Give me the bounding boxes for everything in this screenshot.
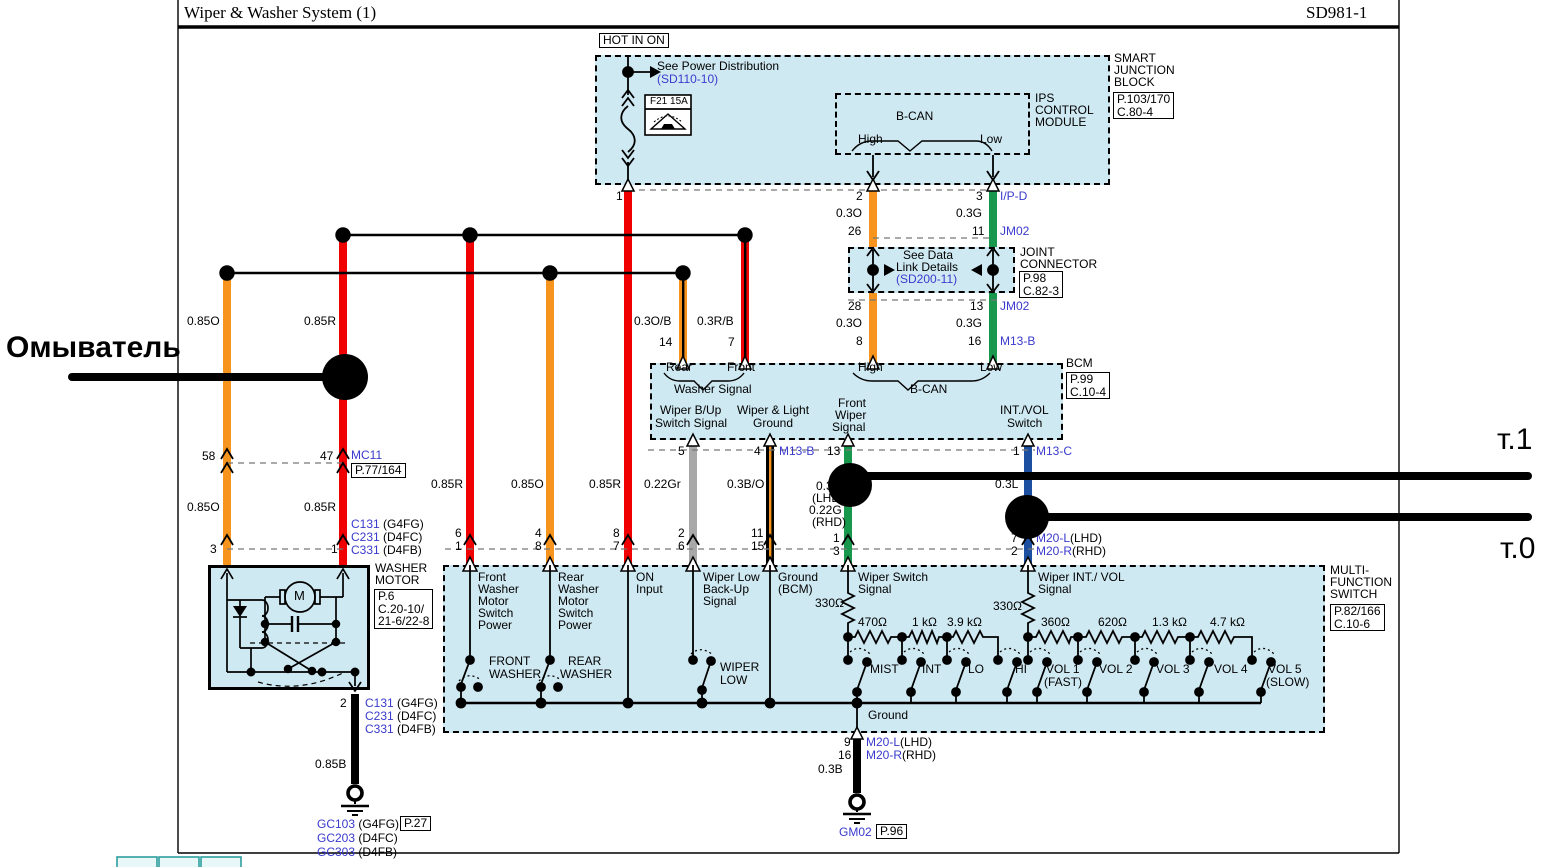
switch-pos: HI [1015,663,1027,676]
mfs-col: Signal [1038,583,1071,596]
wire-label: 0.3G [956,317,982,330]
resistor-value: 620Ω [1098,616,1127,629]
pin: 58 [202,450,215,463]
connector-row: C231 (D4FC) [351,531,422,544]
t1-annotation: т.1 [1497,424,1532,456]
bcm-rear: Rear [666,361,692,374]
connector-row: C331 (D4FB) [351,544,422,557]
washer-annotation: Омыватель [6,332,181,364]
bcm-high: High [858,361,883,374]
bcm-io: Wiper & Light [737,404,809,417]
connector-row: C331 (D4FB) [365,723,436,736]
switch-pos: (SLOW) [1266,676,1309,689]
washer-motor-ref: P.6C.20-10/21-6/22-8 [374,589,433,629]
pin: 5 [678,445,685,458]
mfs-ref: P.82/166C.10-6 [1330,604,1385,631]
pin: 2 [1011,545,1018,558]
wire-label: 0.85R [304,315,336,328]
bcm-bcan: B-CAN [910,383,947,396]
ground-page-ref: P.27 [400,816,431,831]
pin: 1 [833,532,840,545]
pin: 6 [455,527,462,540]
pin: 16 [968,335,981,348]
switch-pos: WASHER [489,668,541,681]
pin: 2 [678,527,685,540]
bcm-io: Switch [1007,417,1042,430]
t0-annotation: т.0 [1500,533,1535,565]
ground-row: GC303 (D4FB) [317,846,397,859]
switch-pos: LOW [720,674,747,687]
pin: 13 [970,300,983,313]
pin: 4 [535,527,542,540]
washer-motor-name-2: MOTOR [375,574,419,587]
connector-row: M20-R(RHD) [866,749,936,762]
hot-in-on-label: HOT IN ON [599,33,669,48]
pin: 1 [331,543,338,556]
bcm-name: BCM [1066,357,1093,370]
pin: 8 [856,335,863,348]
switch-pos: VOL 1 [1046,663,1080,676]
wire-label: 0.85O [187,501,220,514]
wire-label: 0.85R [589,478,621,491]
pin: 47 [320,450,333,463]
switch-pos: REAR [568,655,601,668]
pin: 7 [613,540,620,553]
resistor-value: 4.7 kΩ [1210,616,1245,629]
wiring-diagram-page: Wiper & Washer System (1) SD981-1 [0,0,1563,867]
mfs-name-3: SWITCH [1330,588,1377,601]
wire-label: 0.85B [315,758,346,771]
wire-label: 0.3O [836,317,862,330]
bcm-low: Low [980,361,1002,374]
pin: 2 [340,697,347,710]
resistor-value: 1 kΩ [912,616,937,629]
pin: 11 [751,527,763,540]
mfs-ground: Ground [868,709,908,722]
switch-pos: (FAST) [1044,676,1082,689]
connector-ref: JM02 [1000,300,1029,313]
high-top: High [858,133,883,146]
jc-name-2: CONNECTOR [1020,258,1097,271]
pin: 11 [972,225,984,238]
resistor-value: 3.9 kΩ [947,616,982,629]
wire-label: 0.85R [431,478,463,491]
pin: 6 [678,540,685,553]
pin: 2 [856,190,863,203]
wire-label: 0.3R/B [697,315,734,328]
switch-pos: VOL 3 [1156,663,1190,676]
pin: 3 [976,190,983,203]
connector-ref: JM02 [1000,225,1029,238]
bcm-io: INT./VOL [1000,404,1049,417]
connector-row: M20-L(LHD) [866,736,932,749]
jc-ref-link: (SD200-11) [896,273,957,286]
resistor-value: 470Ω [858,616,887,629]
switch-pos: INT [922,663,941,676]
connector-row: M20-R(RHD) [1036,545,1106,558]
mfs-col: Signal [703,595,736,608]
wire-label: 0.3B [818,763,843,776]
connector-ref: I/P-D [1000,190,1027,203]
ground-ref: GM02 [839,826,872,839]
pin: 4 [754,445,761,458]
ips-name-3: MODULE [1035,116,1086,129]
motor-m: M [294,589,305,603]
wire-label: 0.85R [304,501,336,514]
pin: 3 [210,543,217,556]
low-top: Low [980,133,1002,146]
wire-label: 0.3B/O [727,478,764,491]
switch-pos: FRONT [489,655,530,668]
fuse-label: F21 15A [650,97,688,108]
pin: 1 [455,540,462,553]
bcan-top: B-CAN [896,110,933,123]
mfs-col: Power [478,619,512,632]
bcm-io: Ground [753,417,793,430]
mfs-col: Signal [858,583,891,596]
sjb-name-3: BLOCK [1114,76,1155,89]
wire-label: 0.3O/B [634,315,671,328]
ground-row: GC103 (G4FG) [317,818,399,831]
mfs-col: Input [636,583,663,596]
switch-pos: LO [968,663,984,676]
pin: 9 [844,736,851,749]
jc-ref: P.98C.82-3 [1019,271,1063,298]
pin: 7 [1011,532,1018,545]
mfs-col: Power [558,619,592,632]
switch-pos: VOL 2 [1099,663,1133,676]
switch-pos: WASHER [560,668,612,681]
connector-ref: MC11 [351,449,382,462]
pin: 14 [659,336,672,349]
pin: 28 [848,300,861,313]
sjb-ref: P.103/170C.80-4 [1113,92,1174,119]
pin: 13 [827,445,840,458]
resistor-value: 330Ω [815,597,844,610]
connector-row: C131 (G4FG) [365,697,438,710]
wire-label: 0.85O [187,315,220,328]
wire-label: 0.22Gr [644,478,681,491]
resistor-value: 1.3 kΩ [1152,616,1187,629]
pin: 15 [751,540,764,553]
bcm-io: Signal [832,421,865,434]
bcm-ref: P.99C.10-4 [1066,372,1110,399]
connector-row: C131 (G4FG) [351,518,424,531]
bcm-io: Wiper B/Up [660,404,721,417]
pin: 1 [616,190,623,203]
mfs-col: (BCM) [778,583,813,596]
switch-pos: MIST [870,663,899,676]
labels-layer: Омывательт.1т.0HOT IN ONSee Power Distri… [0,0,1563,867]
wire-label: 0.3O [836,207,862,220]
pin: 7 [728,336,735,349]
wire-label: 0.3G [956,207,982,220]
switch-pos: VOL 5 [1268,663,1302,676]
pin: 16 [838,749,851,762]
wire-label: 0.85O [511,478,544,491]
connector-page-ref: P.77/164 [351,463,406,478]
resistor-value: 330Ω [993,600,1022,613]
connector-row: M20-L(LHD) [1036,532,1102,545]
bcm-front: Front [727,361,755,374]
resistor-value: 360Ω [1041,616,1070,629]
bcm-io: Switch Signal [655,417,727,430]
see-power-ref: (SD110-10) [657,73,718,86]
pin: 26 [848,225,861,238]
pin: 1 [1013,445,1020,458]
ground-page-ref: P.96 [876,824,907,839]
switch-pos: VOL 4 [1214,663,1248,676]
pin: 8 [535,540,542,553]
connector-ref: M13-B [779,445,814,458]
connector-ref: M13-B [1000,335,1035,348]
wire-label: 0.3L [995,478,1018,491]
ground-row: GC203 (D4FC) [317,832,398,845]
connector-ref: M13-C [1036,445,1072,458]
pin: 8 [613,527,620,540]
wire-label: (RHD) [812,516,846,529]
see-power-distribution: See Power Distribution [657,60,779,73]
connector-row: C231 (D4FC) [365,710,436,723]
switch-pos: WIPER [720,661,759,674]
pin: 3 [833,545,840,558]
bcm-washer-signal: Washer Signal [674,383,752,396]
